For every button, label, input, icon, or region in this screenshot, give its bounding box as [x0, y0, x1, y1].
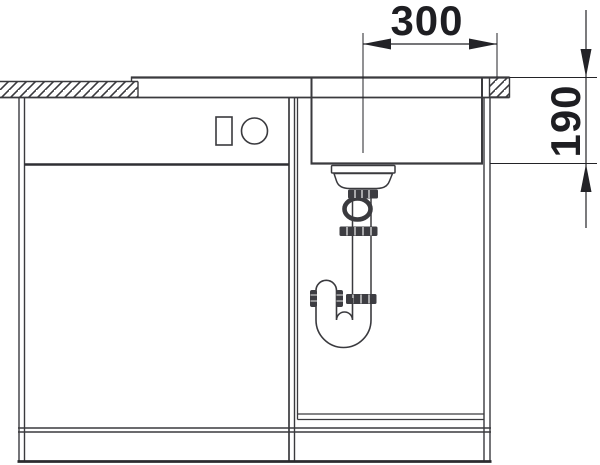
nut-ribs: [347, 190, 371, 304]
dimension-190-label: 190: [542, 84, 589, 157]
drawing-canvas: 300 190: [0, 0, 600, 465]
dimension-190: 190: [490, 10, 597, 228]
outlet-nut: [310, 290, 343, 307]
countertop-right-section: [490, 78, 510, 98]
drain-flange: [332, 166, 396, 174]
dimension-300-label: 300: [390, 0, 463, 44]
arrow-right-icon: [469, 39, 497, 50]
arrow-left-icon: [363, 39, 391, 50]
front-panel-rectangle-icon: [216, 117, 232, 145]
pipe-loop: [345, 199, 371, 220]
countertop-left-section: [0, 82, 138, 98]
arrow-down-icon: [581, 49, 592, 77]
sink-cabinet-interior: [298, 97, 485, 420]
sink-installation-drawing: 300 190: [0, 0, 600, 465]
sink-rim: [131, 77, 510, 82]
cabinet-carcass: [18, 97, 492, 462]
drain-assembly: [310, 166, 395, 348]
front-panel-circle-icon: [242, 118, 268, 144]
siphon-trap: [316, 280, 371, 347]
arrow-up-icon: [581, 164, 592, 192]
drain-cup: [334, 174, 393, 189]
sink-basin: [311, 78, 484, 165]
